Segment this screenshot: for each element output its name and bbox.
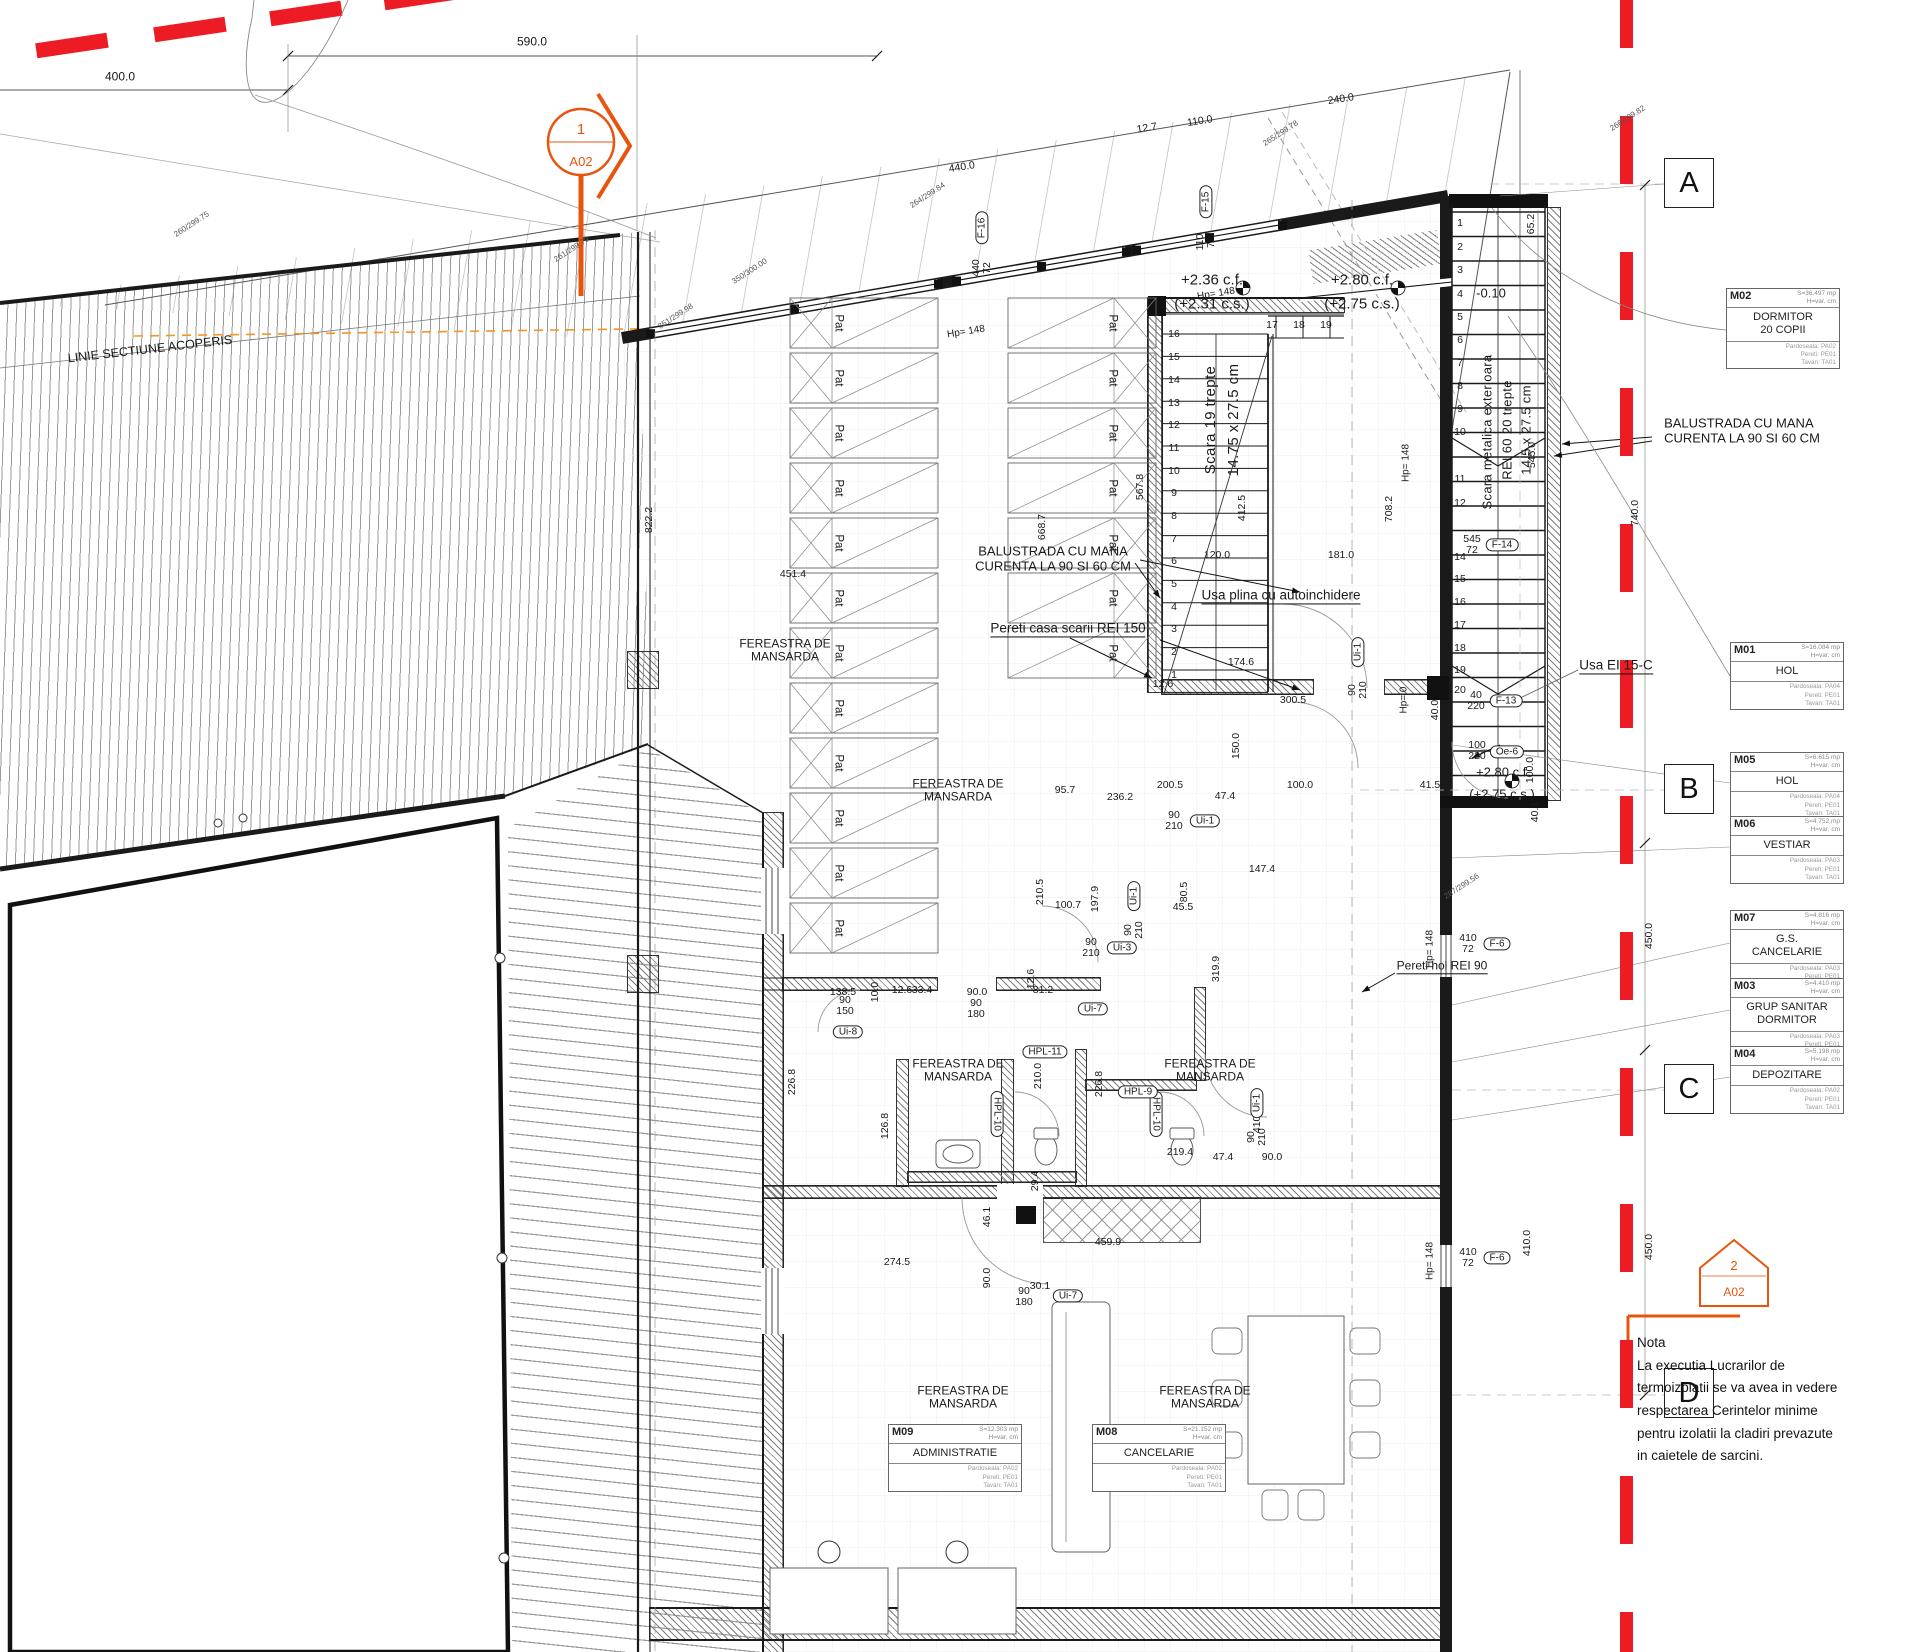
room-area: S=4.752 mp H=var. cm <box>1805 818 1840 834</box>
fixture <box>943 1145 973 1163</box>
grid-marker-A: A <box>1664 158 1714 208</box>
room-tag-M02: M02S=36.497 mp H=var. cmDORMITOR 20 COPI… <box>1726 288 1840 369</box>
fixture-tag: HPL-9 <box>1118 1085 1158 1098</box>
dimension-label: 668.7 <box>1037 514 1049 540</box>
nota-line: respectarea Cerintelor minime <box>1637 1400 1920 1423</box>
bed-label: Pat <box>832 479 845 496</box>
stair-step-number: 17 <box>1454 620 1466 632</box>
plan-rect <box>1262 1490 1288 1520</box>
dimension-label: 100.7 <box>1055 900 1081 912</box>
door-tag: Oe-6 <box>1490 745 1524 758</box>
dimension-label: 545.0 <box>1527 442 1539 468</box>
plan-rect <box>35 33 108 58</box>
dimension-label: 567.8 <box>1135 474 1147 500</box>
door-size: 90 150 <box>836 995 854 1017</box>
window-size: 110 72 <box>1195 234 1217 251</box>
plan-rect <box>1620 388 1633 456</box>
plan-rect <box>790 463 938 513</box>
stair-step-number: 2 <box>1171 647 1177 659</box>
plan-rect <box>1037 262 1046 271</box>
plan-line <box>832 573 938 623</box>
stair-label: Scara metalica exterioara <box>1481 355 1496 510</box>
room-area: S=16.084 mp H=var. cm <box>1801 644 1840 660</box>
plan-line <box>832 518 938 568</box>
plan-line <box>505 744 648 796</box>
door-size: 90 180 <box>967 998 985 1020</box>
plan-rect <box>934 280 943 289</box>
plan-rect <box>1248 1316 1344 1484</box>
stair-step-number: 2 <box>1457 242 1463 254</box>
plan-rect <box>1620 932 1633 1000</box>
room-finishes: Pardoseala: PA03 Pereti: PE01 Tavan: TA0… <box>1731 855 1843 883</box>
room-id: M05 <box>1734 754 1755 770</box>
bed-label: Pat <box>832 754 845 771</box>
plan-rect <box>646 329 655 338</box>
plan-line <box>1452 1010 1730 1062</box>
door-size: 90 180 <box>1015 1286 1033 1308</box>
stair-step-number: 4 <box>1457 289 1463 301</box>
section2-number: 2 <box>1730 1258 1737 1273</box>
door-size: 90 210 <box>1165 810 1183 832</box>
plan-rect <box>1620 0 1633 48</box>
dimension-label: 197.9 <box>1090 886 1102 912</box>
plan-rect <box>790 903 938 953</box>
bed-label: Pat <box>832 314 845 331</box>
stair-label: REI 60 20 trepte <box>1501 380 1516 479</box>
dimension-label: 95.7 <box>1055 785 1075 797</box>
room-id: M03 <box>1734 980 1755 996</box>
dimension-label: 40.0 <box>1430 700 1442 720</box>
plan-rect <box>770 1568 888 1634</box>
dimension-label: 126.8 <box>880 1113 892 1139</box>
plan-rect <box>1620 252 1633 320</box>
section2-sheet: A02 <box>1723 1285 1745 1299</box>
stair-step-number: 11 <box>1455 474 1466 486</box>
stair-step-number: 9 <box>1457 404 1463 416</box>
room-tag-M06: M06S=4.752 mp H=var. cmVESTIARPardoseala… <box>1730 816 1844 884</box>
stair-step-number: 10 <box>1454 427 1466 439</box>
door-size: 100 220 <box>1468 740 1486 762</box>
door-tag: Ui-1 <box>1250 1088 1263 1118</box>
dimension-label: 147.4 <box>1249 864 1275 876</box>
door-size: 90 210 <box>1246 1128 1268 1146</box>
plan-rect <box>761 868 785 934</box>
stair-step-number: 12 <box>1454 498 1466 510</box>
room-name: VESTIAR <box>1731 836 1843 855</box>
stair-step-number: 5 <box>1457 312 1463 324</box>
bed-label: Pat <box>1106 534 1119 551</box>
plan-line <box>832 628 938 678</box>
fixture-tag: HPL-10 <box>990 1091 1003 1137</box>
room-name: HOL <box>1731 772 1843 791</box>
plan-rect <box>1620 524 1633 592</box>
room-area: S=21.152 mp H=var. cm <box>1183 1426 1222 1442</box>
plan-line <box>648 745 763 813</box>
room-id: M08 <box>1096 1426 1117 1442</box>
dimension-label: 412.5 <box>1237 495 1249 521</box>
sill-height-label: Hp= 148 <box>1424 930 1435 968</box>
room-name: G.S. CANCELARIE <box>1731 930 1843 962</box>
plan-line <box>0 235 620 303</box>
room-area: S=36.497 mp H=var. cm <box>1797 290 1836 306</box>
room-tag-M01: M01S=16.084 mp H=var. cmHOLPardoseala: P… <box>1730 642 1844 710</box>
window-size: 410 72 <box>1459 933 1477 955</box>
sill-height-label: Hp= 148 <box>1424 1242 1435 1280</box>
nota-line: in caietele de sarcini. <box>1637 1445 1920 1468</box>
plan-rect <box>1016 1206 1036 1224</box>
bed-label: Pat <box>832 534 845 551</box>
dimension-label: 822.2 <box>644 507 656 533</box>
plan-line <box>832 353 938 403</box>
dimension-label: 80.5 <box>1179 882 1191 902</box>
stair-step-number: 18 <box>1454 643 1466 655</box>
room-name: HOL <box>1731 662 1843 681</box>
plan-rect <box>1212 1328 1242 1354</box>
stair-step-number: 12 <box>1168 420 1180 432</box>
plan-rect <box>1620 1204 1633 1272</box>
dimension-label: 210.5 <box>1035 879 1047 905</box>
dimension-label: 210.0 <box>1033 1063 1045 1089</box>
level-label: -0.10 <box>1476 287 1506 302</box>
plan-line <box>1008 353 1114 403</box>
stair-step-number: 5 <box>1171 579 1177 591</box>
sill-height-label: Hp= 0 <box>1398 687 1409 714</box>
stair-step-number: 14 <box>1168 375 1180 387</box>
plan-path <box>1398 281 1405 288</box>
plan-rect <box>1132 246 1141 255</box>
room-finishes: Pardoseala: PA04 Pereti: PE01 Tavan: TA0… <box>1731 791 1843 819</box>
room-finishes: Pardoseala: PA02 Pereti: PE01 Tavan: TA0… <box>1727 341 1839 369</box>
nota-line: La executia Lucrarilor de <box>1637 1355 1920 1378</box>
stair-step-number: 6 <box>1171 556 1177 568</box>
stair-step-number: 11 <box>1169 443 1180 455</box>
room-name: DEPOZITARE <box>1731 1066 1843 1085</box>
door-tag: Ui-7 <box>1053 1289 1083 1302</box>
plan-rect <box>1620 796 1633 864</box>
plan-rect <box>1298 1490 1324 1520</box>
sill-height-label: Hp= 148 <box>1400 444 1411 482</box>
plan-rect <box>383 0 456 10</box>
dimension-label: 410.0 <box>1522 1230 1534 1256</box>
plan-circle <box>495 953 505 963</box>
stair-step-number: 16 <box>1168 329 1180 341</box>
room-area: S=5.198 mp H=var. cm <box>1805 1048 1840 1064</box>
plan-line <box>832 298 938 348</box>
plan-line <box>1362 973 1395 992</box>
plan-rect <box>1170 1128 1194 1139</box>
stair-step-number: 18 <box>1293 320 1305 332</box>
plan-path <box>1292 702 1358 768</box>
room-area: S=12.303 mp H=var. cm <box>979 1426 1018 1442</box>
stair-step-number: 14 <box>1454 552 1466 564</box>
stair-step-number: 8 <box>1171 511 1177 523</box>
nota-line: pentru izolatii la cladiri prevazute <box>1637 1423 1920 1446</box>
room-finishes: Pardoseala: PA04 Pereti: PE01 Tavan: TA0… <box>1731 681 1843 709</box>
dimension-label: 40.1 <box>1530 802 1542 822</box>
balustrade-note: BALUSTRADA CU MANA CURENTA LA 90 SI 60 C… <box>1664 416 1820 445</box>
plan-rect <box>1620 1340 1633 1408</box>
nota-line: Nota <box>1637 1332 1920 1355</box>
plan-circle <box>499 1553 509 1563</box>
window-size: 410 72 <box>1459 1247 1477 1269</box>
plan-circle <box>497 1253 507 1263</box>
dimension-label: 45.5 <box>1173 902 1193 914</box>
plan-rect <box>1350 1328 1380 1354</box>
plan-line <box>1500 184 1664 196</box>
dimension-label: 47.4 <box>1213 1152 1233 1164</box>
dimension-label: 100.0 <box>1525 757 1537 783</box>
floor-plan-sheet: 1 A02 2 A02 590.0400.0440.012.7110.0240.… <box>0 0 1920 1652</box>
level-label: (+2.31 c.s.) <box>1174 297 1249 314</box>
room-name: GRUP SANITAR DORMITOR <box>1731 998 1843 1030</box>
stair-step-number: 19 <box>1320 320 1332 332</box>
fixture <box>1035 1135 1057 1165</box>
door-note: Usa plina cu autoinchidere <box>1201 587 1360 604</box>
room-tag-M04: M04S=5.198 mp H=var. cmDEPOZITAREPardose… <box>1730 1046 1844 1114</box>
bed-label: Pat <box>832 369 845 386</box>
wall-note: Pereti casa scarii REI 150 <box>990 620 1145 637</box>
bed-label: Pat <box>832 699 845 716</box>
dimension-label: 174.6 <box>1228 657 1254 669</box>
stair-step-number: 9 <box>1171 488 1177 500</box>
dimension-label: 200.5 <box>1157 780 1183 792</box>
stair-step-number: 3 <box>1457 265 1463 277</box>
dimension-label: 120.0 <box>1204 550 1230 562</box>
bed-label: Pat <box>1106 314 1119 331</box>
level-label: +2.80 c.f. <box>1476 766 1530 781</box>
stair-step-number: 19 <box>1454 665 1466 677</box>
plan-path <box>1243 281 1250 288</box>
plan-rect <box>790 304 799 313</box>
bed-label: Pat <box>1106 644 1119 661</box>
door-size: 90 210 <box>1082 937 1100 959</box>
room-area: S=4.410 mp H=var. cm <box>1805 980 1840 996</box>
bed-label: Pat <box>832 644 845 661</box>
plan-rect <box>1620 1068 1633 1136</box>
room-tag-M09: M09S=12.303 mp H=var. cmADMINISTRATIEPar… <box>888 1424 1022 1492</box>
room-area: S=6.615 mp H=var. cm <box>1805 754 1840 770</box>
bed-label: Pat <box>832 589 845 606</box>
door-tag: Ui-1 <box>1190 814 1220 827</box>
nota-block: Nota La executia Lucrarilor de termoizol… <box>1637 1332 1920 1468</box>
plan-rect <box>153 17 226 42</box>
plan-rect <box>952 277 961 286</box>
section-marker-1: 1 A02 <box>548 94 630 296</box>
room-id: M04 <box>1734 1048 1755 1064</box>
skylight-label: FEREASTRA DE MANSARDA <box>912 778 1003 805</box>
plan-line <box>1452 943 1730 1005</box>
stair-step-number: 13 <box>1168 398 1180 410</box>
dimension-label: 400.0 <box>105 70 135 83</box>
door-note: Usa EI 15-C <box>1579 657 1653 674</box>
dimension-label: 274.5 <box>884 1257 910 1269</box>
room-finishes: Pardoseala: PA02 Pereti: PE01 Tavan: TA0… <box>889 1463 1021 1491</box>
dimension-label: 150.0 <box>1231 733 1243 759</box>
plan-rect <box>1278 221 1287 230</box>
dimension-label: 100.0 <box>1287 780 1313 792</box>
dimension-label: 740.0 <box>1630 500 1642 526</box>
window-tag: F-6 <box>1484 937 1511 950</box>
room-finishes: Pardoseala: PA02 Pereti: PE01 Tavan: TA0… <box>1093 1463 1225 1491</box>
stair-step-number: 15 <box>1454 574 1466 586</box>
dimension-label: 319.9 <box>1211 956 1223 982</box>
plan-rect <box>1008 298 1156 348</box>
plan-rect <box>1350 1380 1380 1406</box>
plan-rect <box>1122 247 1131 256</box>
tag-leader <box>1508 316 1730 676</box>
plan-rect <box>790 353 938 403</box>
bed-label: Pat <box>1106 369 1119 386</box>
plan-rect <box>790 408 938 458</box>
stair-step-number: 17 <box>1266 320 1278 332</box>
door-size: 90 210 <box>1123 921 1145 939</box>
dimension-label: 450.0 <box>1644 1234 1656 1260</box>
stair-step-number: 10 <box>1168 466 1180 478</box>
dimension-label: 708.2 <box>1384 496 1396 522</box>
dimension-label: 90.0 <box>1262 1152 1282 1164</box>
skylight-label: FEREASTRA DE MANSARDA <box>912 1058 1003 1085</box>
bed-label: Pat <box>832 424 845 441</box>
stair-step-number: 4 <box>1171 602 1177 614</box>
window-size: 40 220 <box>1467 690 1485 712</box>
stair-step-number: 3 <box>1171 624 1177 636</box>
window-size: 440 72 <box>971 259 993 277</box>
stair-step-number: 20 <box>1454 685 1466 697</box>
bed-label: Pat <box>1106 479 1119 496</box>
room-id: M02 <box>1730 290 1751 306</box>
plan-rect <box>761 1268 785 1334</box>
plan-rect <box>790 573 938 623</box>
dimension-label: 459.9 <box>1095 1237 1121 1249</box>
room-area: S=4.816 mp H=var. cm <box>1805 912 1840 928</box>
stair-step-number: 7 <box>1457 358 1463 370</box>
dimension-label: 12.6 <box>1026 969 1038 989</box>
door-tag: Ui-7 <box>1078 1002 1108 1015</box>
plan-rect <box>1008 408 1156 458</box>
plan-line <box>832 903 938 953</box>
plan-rect <box>790 518 938 568</box>
plan-circle <box>214 819 222 827</box>
dimension-label: 90.0 <box>982 1268 994 1288</box>
plan-line <box>832 463 938 513</box>
window-tag: F-14 <box>1486 538 1519 551</box>
stair-step-number: 6 <box>1457 335 1463 347</box>
fixture-tag: HPL-11 <box>1022 1045 1067 1058</box>
stair-step-number: 1 <box>1457 218 1463 230</box>
skylight-label: FEREASTRA DE MANSARDA <box>739 638 830 665</box>
plan-rect <box>790 683 938 733</box>
bed-label: Pat <box>1106 589 1119 606</box>
room-tag-M08: M08S=21.152 mp H=var. cmCANCELARIEPardos… <box>1092 1424 1226 1492</box>
room-tag-M05: M05S=6.615 mp H=var. cmHOLPardoseala: PA… <box>1730 752 1844 820</box>
plan-line <box>1008 463 1114 513</box>
stair-step-number: 1 <box>1171 670 1177 682</box>
room-id: M06 <box>1734 818 1755 834</box>
room-name: CANCELARIE <box>1093 1444 1225 1463</box>
door-tag: Ui-1 <box>1127 881 1140 911</box>
nota-line: termoizolatii se va avea in vedere <box>1637 1377 1920 1400</box>
window-tag: F-13 <box>1490 694 1523 707</box>
dimension-label: 65.2 <box>1526 214 1538 234</box>
plan-line <box>1008 573 1114 623</box>
plan-rect <box>1148 296 1166 316</box>
plan-rect <box>269 1 342 26</box>
skylight-label: FEREASTRA DE MANSARDA <box>1159 1385 1250 1412</box>
dimension-label: 300.5 <box>1280 695 1306 707</box>
level-label: (+2.75 c.s.) <box>1469 788 1534 803</box>
bed-label: Pat <box>1106 424 1119 441</box>
plan-rect <box>790 848 938 898</box>
dimension-label: 47.4 <box>1215 791 1235 803</box>
plan-rect <box>898 1568 1016 1634</box>
bed-label: Pat <box>832 809 845 826</box>
plan-circle <box>818 1541 840 1563</box>
dimension-label: 226.8 <box>1094 1071 1106 1097</box>
skylight-label: FEREASTRA DE MANSARDA <box>1164 1058 1255 1085</box>
level-label: (+2.75 c.s.) <box>1324 297 1399 314</box>
plan-rect <box>1620 1612 1633 1652</box>
grid-marker-C: C <box>1664 1064 1714 1114</box>
dimension-label: 10.0 <box>870 982 882 1002</box>
dimension-label: 236.2 <box>1107 792 1133 804</box>
plan-rect <box>1427 676 1449 700</box>
level-label: +2.80 c.f. <box>1331 273 1393 290</box>
plan-rect <box>1350 1432 1380 1458</box>
dimension-label: 450.0 <box>1644 923 1656 949</box>
door-size: 90 210 <box>1347 681 1369 699</box>
plan-line <box>1268 118 1452 418</box>
window-tag: F-6 <box>1484 1251 1511 1264</box>
room-finishes: Pardoseala: PA02 Pereti: PE01 Tavan: TA0… <box>1731 1085 1843 1113</box>
dimension-label: 590.0 <box>517 35 547 48</box>
stair-step-number: 7 <box>1171 534 1177 546</box>
dimension-label: 41.5 <box>1420 780 1440 792</box>
stair-step-number: 15 <box>1168 352 1180 364</box>
dimension-label: 29.4 <box>1030 1171 1042 1191</box>
lower-building-outline <box>10 818 508 1652</box>
stair-step-number: 8 <box>1457 381 1463 393</box>
room-name: ADMINISTRATIE <box>889 1444 1021 1463</box>
dimension-label: 219.4 <box>1167 1147 1193 1159</box>
skylight-label: FEREASTRA DE MANSARDA <box>917 1385 1008 1412</box>
plan-circle <box>239 814 247 822</box>
dimension-label: 12.6 <box>892 985 912 997</box>
plan-line <box>832 848 938 898</box>
level-label: +2.36 c.f. <box>1181 273 1243 290</box>
wall-note: Pereti hol REI 90 <box>1397 959 1488 974</box>
room-id: M07 <box>1734 912 1755 928</box>
room-id: M09 <box>892 1426 913 1442</box>
door-tag: Ui-3 <box>1107 941 1137 954</box>
plan-line <box>1452 847 1730 858</box>
dimension-label: 181.0 <box>1328 550 1354 562</box>
plan-rect <box>1449 194 1548 208</box>
section1-sheet: A02 <box>569 154 592 169</box>
plan-rect <box>1034 1128 1058 1139</box>
plan-rect <box>1008 573 1156 623</box>
door-tag: Ui-8 <box>833 1025 863 1038</box>
bed-label: Pat <box>832 919 845 936</box>
plan-rect <box>1620 1476 1633 1544</box>
bed-label: Pat <box>832 864 845 881</box>
plan-rect <box>1008 353 1156 403</box>
dimension-label: 30.1 <box>1030 1281 1050 1293</box>
window-tag: F-15 <box>1199 186 1212 219</box>
room-id: M01 <box>1734 644 1755 660</box>
dimension-label: 451.4 <box>780 569 806 581</box>
stair-label: Scara 19 trepte 14.75 x 27.5 cm <box>1199 364 1246 477</box>
room-name: DORMITOR 20 COPII <box>1727 308 1839 340</box>
